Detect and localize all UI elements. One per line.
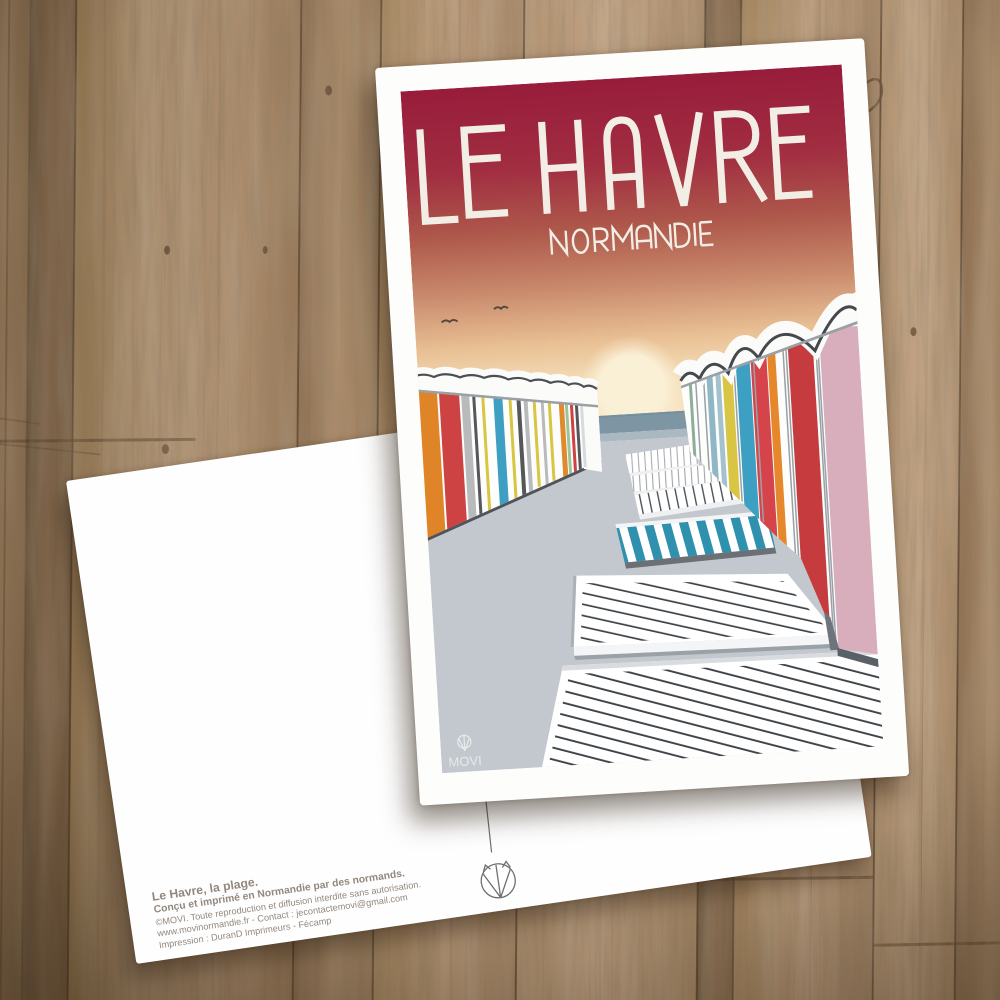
svg-text:MOVI: MOVI (448, 753, 482, 770)
